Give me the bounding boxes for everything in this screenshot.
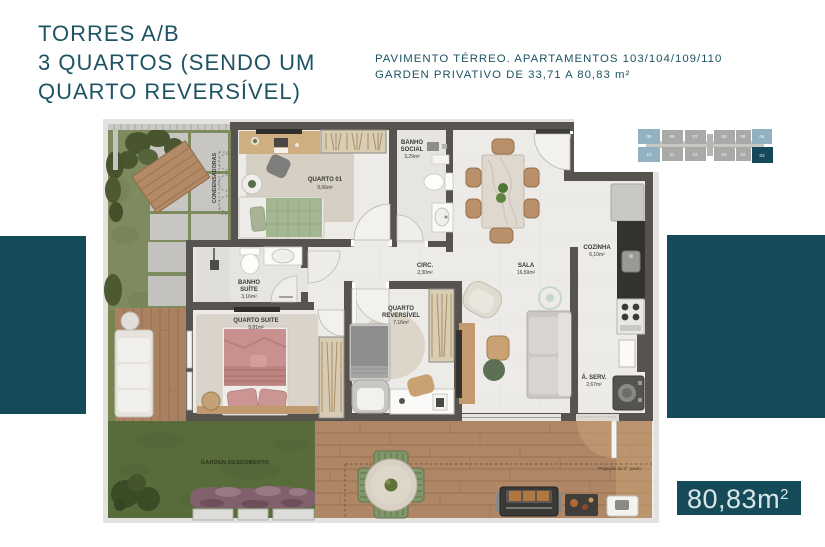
svg-text:80,83m2: 80,83m2: [687, 484, 789, 514]
svg-text:SOCIAL: SOCIAL: [401, 147, 424, 153]
svg-text:05: 05: [646, 134, 652, 139]
svg-text:GARDEN DESCOBERTO: GARDEN DESCOBERTO: [201, 460, 270, 466]
svg-text:16,59m²: 16,59m²: [517, 270, 536, 276]
svg-text:QUARTO SUITE: QUARTO SUITE: [233, 318, 278, 324]
svg-text:04: 04: [759, 134, 765, 139]
svg-text:09: 09: [740, 134, 746, 139]
svg-text:3,29m²: 3,29m²: [404, 154, 420, 160]
svg-text:3,16m²: 3,16m²: [241, 294, 257, 300]
svg-text:7,16m²: 7,16m²: [393, 320, 409, 326]
svg-text:01: 01: [721, 152, 727, 157]
svg-text:QUARTO REVERSÍVEL): QUARTO REVERSÍVEL): [38, 79, 301, 104]
svg-text:REVERSÍVEL: REVERSÍVEL: [382, 311, 420, 319]
svg-text:BANHO: BANHO: [238, 280, 260, 286]
svg-text:08: 08: [721, 134, 727, 139]
svg-text:TORRES A/B: TORRES A/B: [38, 21, 180, 46]
svg-text:3 QUARTOS (SENDO UM: 3 QUARTOS (SENDO UM: [38, 50, 315, 75]
svg-text:02: 02: [740, 152, 746, 157]
svg-text:Á. SERV.: Á. SERV.: [581, 374, 606, 381]
svg-text:COZINHA: COZINHA: [583, 245, 611, 251]
svg-text:2,67m²: 2,67m²: [586, 382, 602, 388]
svg-text:PAVIMENTO TÉRREO. APARTAMENTOS: PAVIMENTO TÉRREO. APARTAMENTOS 103/104/1…: [375, 52, 722, 65]
svg-text:07: 07: [692, 134, 698, 139]
svg-text:11: 11: [670, 152, 675, 157]
svg-text:10: 10: [646, 152, 652, 157]
svg-text:2,30m²: 2,30m²: [417, 270, 433, 276]
svg-text:9,81m²: 9,81m²: [248, 325, 264, 331]
svg-text:06: 06: [669, 134, 675, 139]
svg-text:6,10m²: 6,10m²: [589, 252, 605, 258]
svg-text:QUARTO 01: QUARTO 01: [308, 177, 343, 183]
svg-text:CIRC.: CIRC.: [417, 263, 434, 269]
svg-text:GARDEN PRIVATIVO DE 33,71 A 80: GARDEN PRIVATIVO DE 33,71 A 80,83 m²: [375, 69, 630, 81]
svg-text:BANHO: BANHO: [401, 140, 423, 146]
svg-text:SALA: SALA: [518, 263, 535, 269]
svg-text:9,06m²: 9,06m²: [317, 185, 333, 191]
svg-text:SUÍTE: SUÍTE: [240, 285, 258, 293]
svg-text:CONDENSADORAS: CONDENSADORAS: [212, 152, 218, 203]
svg-text:12: 12: [692, 152, 698, 157]
svg-text:Projeção do 2° pavto.: Projeção do 2° pavto.: [598, 466, 642, 471]
svg-text:QUARTO: QUARTO: [388, 306, 414, 312]
svg-text:03: 03: [759, 153, 765, 158]
